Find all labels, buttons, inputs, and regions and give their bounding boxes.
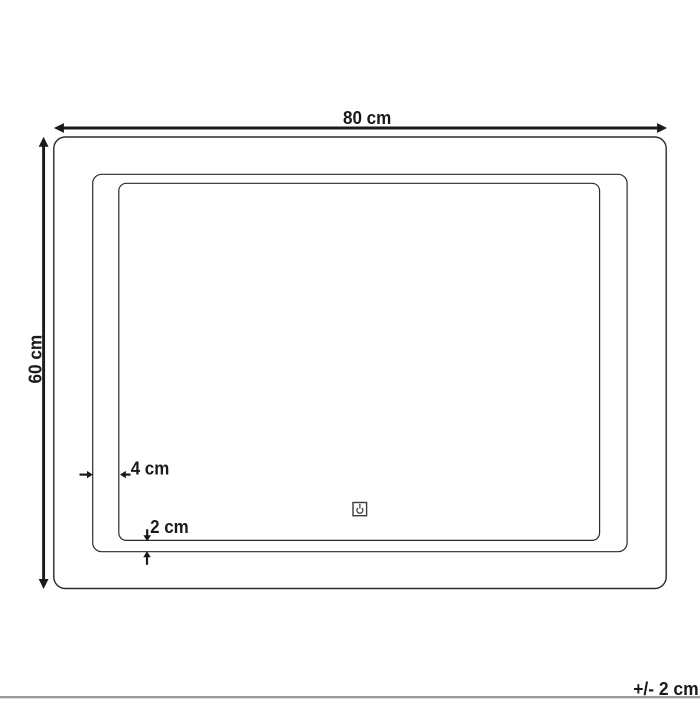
svg-text:+/- 2 cm: +/- 2 cm — [633, 678, 698, 699]
svg-text:80 cm: 80 cm — [343, 107, 391, 128]
svg-text:60 cm: 60 cm — [25, 335, 46, 384]
svg-text:4 cm: 4 cm — [131, 458, 170, 479]
svg-text:2 cm: 2 cm — [150, 516, 189, 537]
